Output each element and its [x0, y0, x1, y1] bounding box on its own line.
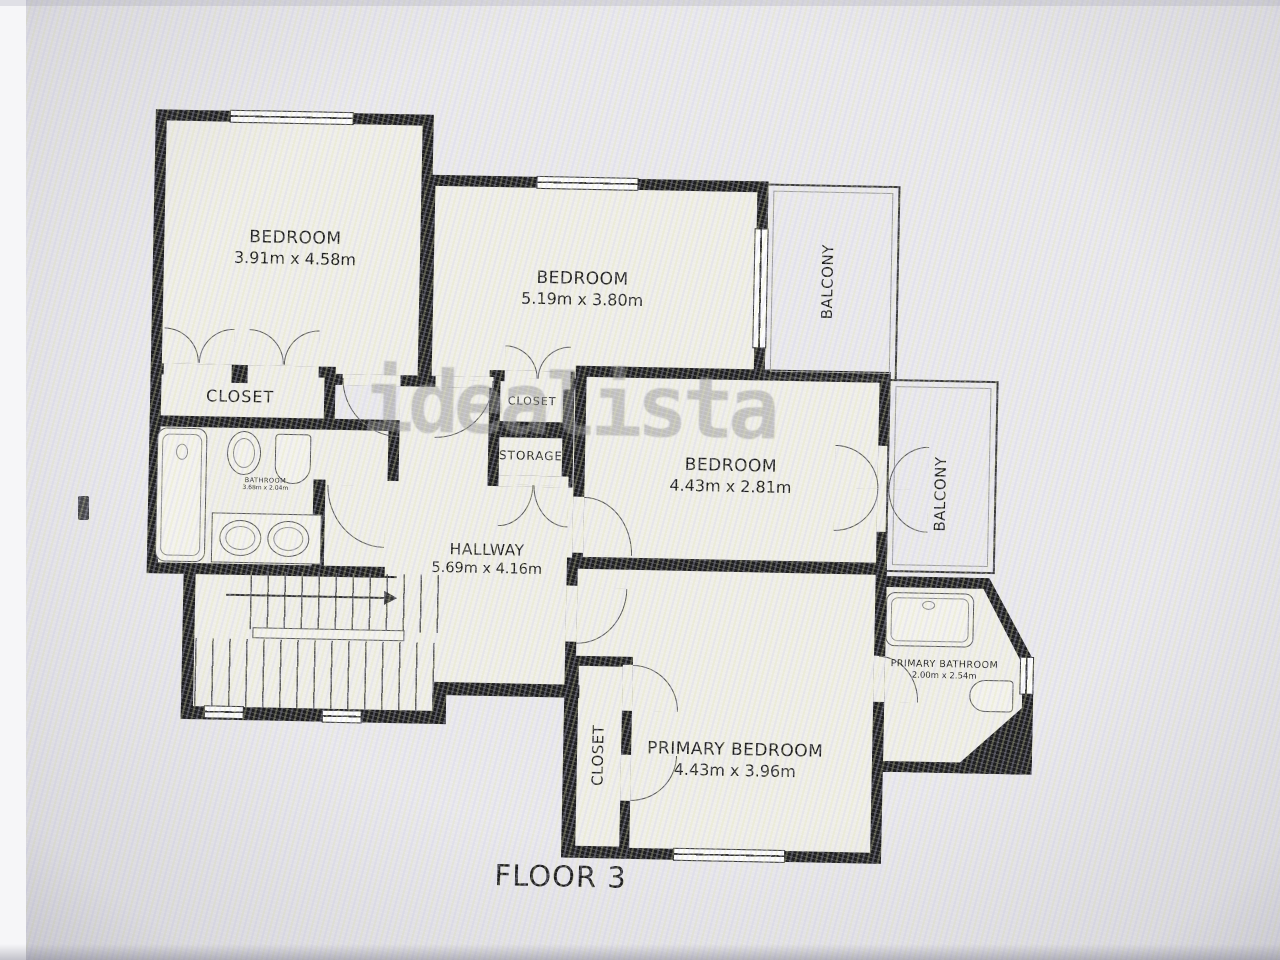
room-label-hallway: HALLWAY 5.69m x 4.16m	[387, 538, 588, 581]
hallway-bottom-wall	[433, 682, 579, 698]
photo-smudge	[78, 496, 89, 520]
room-label-bathroom: BATHROOM 3.68m x 2.04m	[200, 475, 330, 494]
room-dims: 5.69m x 4.16m	[387, 558, 587, 581]
room-label-closet-top-left: CLOSET	[170, 386, 310, 410]
bathtub-drain	[922, 601, 935, 610]
window	[536, 176, 638, 191]
room-label-closet-primary: CLOSET	[588, 705, 608, 805]
window	[673, 848, 785, 863]
room-label-bedroom-top-middle: BEDROOM 5.19m x 3.80m	[462, 265, 703, 313]
stairs-direction-arrow	[384, 591, 397, 605]
photo-edge-bottom	[0, 944, 1280, 960]
photo-edge-left	[0, 0, 26, 960]
room-label-balcony-right: BALCONY	[930, 444, 950, 544]
window	[204, 705, 244, 719]
idealista-watermark: idealista	[361, 351, 843, 461]
room-label-balcony-top: BALCONY	[818, 232, 838, 332]
window	[230, 110, 354, 125]
room-label-primary-bedroom: PRIMARY BEDROOM 4.43m x 3.96m	[585, 736, 886, 785]
stairs-lower-flight	[194, 638, 439, 711]
room-label-bedroom-top-left: BEDROOM 3.91m x 4.58m	[175, 225, 416, 273]
photo-edge-top	[0, 0, 1280, 6]
toilet	[969, 680, 1014, 713]
room-name: CLOSET	[170, 386, 310, 410]
stairs-upper-flight	[249, 571, 440, 633]
closet-door-divider	[231, 365, 247, 383]
room-label-primary-bathroom: PRIMARY BATHROOM 2.00m x 2.54m	[862, 657, 1027, 684]
window	[322, 710, 362, 724]
floor-caption: FLOOR 3	[460, 857, 661, 895]
floor-plan: BEDROOM 3.91m x 4.58m BEDROOM 5.19m x 3.…	[132, 99, 1048, 917]
sliding-door	[752, 228, 768, 348]
